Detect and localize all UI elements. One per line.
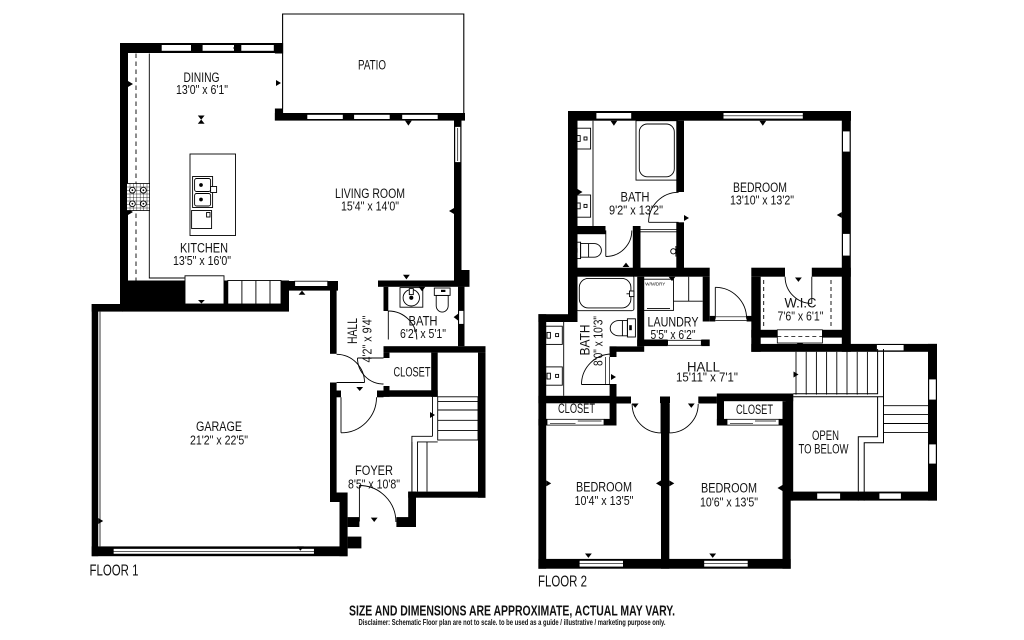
svg-text:W.I.C: W.I.C <box>785 296 817 311</box>
svg-text:15'11" x 7'1": 15'11" x 7'1" <box>676 371 738 385</box>
svg-text:13'10" x 13'2": 13'10" x 13'2" <box>730 194 794 208</box>
svg-text:CLOSET: CLOSET <box>394 365 431 380</box>
svg-text:10'4" x 13'5": 10'4" x 13'5" <box>575 494 634 508</box>
svg-text:TO BELOW: TO BELOW <box>799 442 849 457</box>
svg-text:GARAGE: GARAGE <box>196 419 242 434</box>
svg-text:CLOSET: CLOSET <box>736 402 773 417</box>
svg-text:6'2" x 5'1": 6'2" x 5'1" <box>400 327 446 341</box>
svg-text:15'4" x 14'0": 15'4" x 14'0" <box>341 200 399 214</box>
svg-text:BEDROOM: BEDROOM <box>701 481 757 496</box>
svg-text:4'2" x 9'4": 4'2" x 9'4" <box>361 316 375 363</box>
svg-text:Disclaimer: Schematic Floor pl: Disclaimer: Schematic Floor plan are not… <box>359 618 666 627</box>
svg-text:13'5" x 16'0": 13'5" x 16'0" <box>173 254 231 268</box>
svg-text:W/M/DRY: W/M/DRY <box>645 282 666 288</box>
svg-text:10'6" x 13'5": 10'6" x 13'5" <box>700 496 758 510</box>
svg-text:7'6" x 6'1": 7'6" x 6'1" <box>778 310 824 324</box>
svg-text:8'0" x 10'3": 8'0" x 10'3" <box>592 316 606 366</box>
svg-text:21'2" x 22'5": 21'2" x 22'5" <box>190 434 248 448</box>
svg-text:BATH: BATH <box>578 325 593 356</box>
svg-text:BEDROOM: BEDROOM <box>576 480 632 495</box>
svg-text:FLOOR 1: FLOOR 1 <box>90 563 139 580</box>
svg-text:13'0" x 6'1": 13'0" x 6'1" <box>176 83 228 97</box>
svg-text:CLOSET: CLOSET <box>558 401 595 416</box>
svg-text:HALL: HALL <box>345 318 360 344</box>
svg-text:BATH: BATH <box>621 190 650 205</box>
svg-text:8'5" x 10'8": 8'5" x 10'8" <box>348 478 400 492</box>
svg-text:FOYER: FOYER <box>355 463 393 478</box>
svg-text:FLOOR 2: FLOOR 2 <box>538 574 587 591</box>
svg-text:PATIO: PATIO <box>358 58 386 73</box>
svg-text:9'2" x 13'2": 9'2" x 13'2" <box>609 204 663 218</box>
